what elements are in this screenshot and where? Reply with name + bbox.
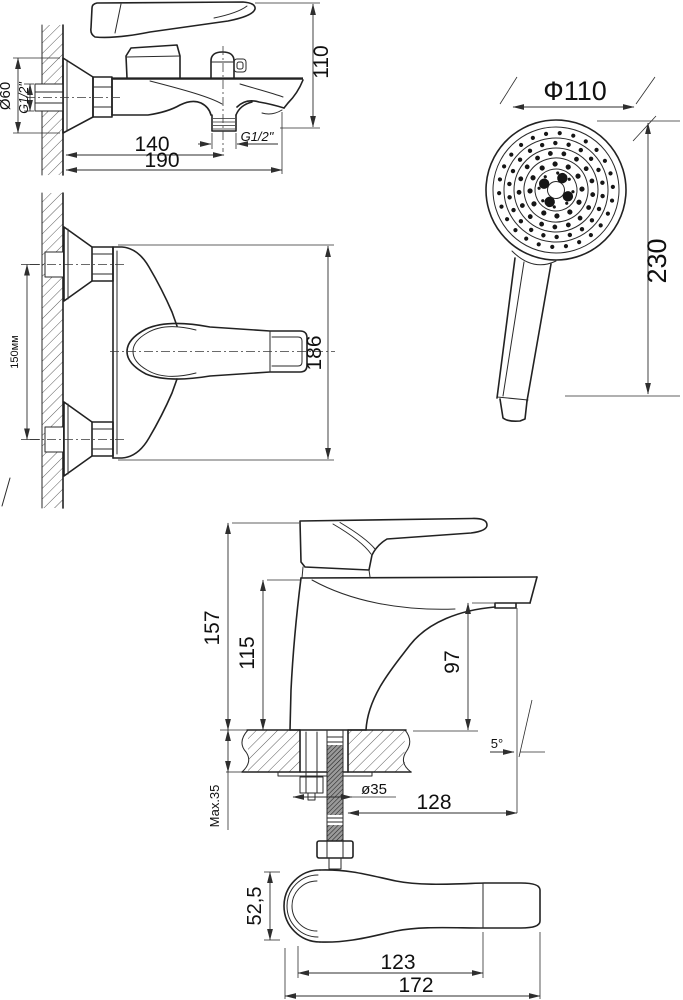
mounting-stud — [300, 732, 323, 800]
dim-head-diameter-label: Ф110 — [543, 76, 607, 106]
shower-head — [469, 103, 644, 278]
dim-reach-label: 128 — [416, 791, 451, 814]
spout-top-outline — [284, 870, 540, 942]
dim-reach-total-label: 190 — [144, 149, 179, 172]
dim-length-label: 230 — [642, 238, 672, 283]
outlet-thread — [212, 115, 236, 131]
basin-handle-block — [300, 518, 487, 570]
break-mark — [2, 478, 10, 506]
wall-section — [35, 25, 63, 175]
dim-width-label: 186 — [303, 335, 326, 370]
dim-spout-width-label: 52,5 — [244, 887, 266, 926]
drawing-svg: Ø60 G1/2" 110 140 190 G1/2" — [0, 0, 683, 1000]
view-basin-mixer-top: 52,5 123 172 — [244, 870, 540, 999]
cartridge-housing — [126, 45, 180, 78]
counter-deck-section — [242, 730, 411, 776]
dim-angle-label: 5° — [491, 736, 503, 751]
mixer-body-spout — [112, 78, 303, 115]
dim-wall-thread-label: G1/2" — [17, 82, 31, 114]
dimensions-basin-side: 157 115 97 Мах.35 ø35 5° 128 — [201, 523, 545, 830]
dim-hole-label: ø35 — [361, 781, 387, 798]
shower-handle — [497, 251, 556, 421]
view-hand-shower: Ф110 230 — [469, 76, 680, 421]
dim-spout-height-label: 97 — [441, 650, 464, 673]
dim-body-height-label: 115 — [236, 636, 259, 669]
dim-outlet-thread-label: G1/2" — [241, 129, 275, 144]
wall-section-top — [42, 193, 63, 508]
technical-drawing-sheet: Ø60 G1/2" 110 140 190 G1/2" — [0, 0, 683, 1000]
dim-height-label: 110 — [310, 45, 333, 78]
dim-centers-label: 150мм — [9, 335, 21, 368]
escutcheon-top-connection — [64, 227, 113, 301]
escutcheon-bottom-connection — [64, 402, 113, 476]
hex-nut — [93, 77, 112, 117]
view-bath-mixer-top: 150мм 186 — [2, 193, 335, 508]
dim-total-height-label: 157 — [201, 610, 224, 645]
dim-total-length-label: 172 — [398, 974, 433, 997]
dim-spout-reach-label: 123 — [380, 951, 415, 974]
dimensions-spout-top: 52,5 123 172 — [244, 872, 540, 999]
dim-deck-max-label: Мах.35 — [207, 785, 222, 828]
view-bath-mixer-side: Ø60 G1/2" 110 140 190 G1/2" — [0, 2, 333, 175]
escutcheon — [63, 58, 93, 133]
mixer-body-top — [113, 247, 307, 458]
view-basin-mixer-side: 157 115 97 Мах.35 ø35 5° 128 — [201, 518, 545, 869]
dim-flange-label: Ø60 — [0, 82, 14, 110]
diverter-knob — [211, 52, 246, 78]
lever-handle — [91, 2, 255, 37]
basin-body-spout — [290, 567, 537, 730]
